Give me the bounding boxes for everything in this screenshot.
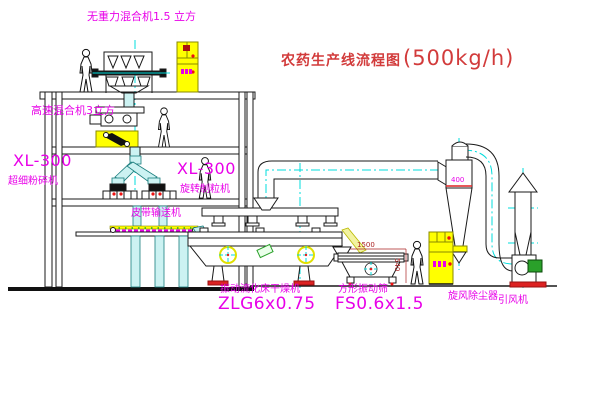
vibration-motor <box>219 246 237 264</box>
dim-sieve-height: 540 <box>393 258 400 271</box>
vibration-motor <box>297 246 315 264</box>
label-sieve-model: FS0.6x1.5 <box>335 296 424 313</box>
gravity-mixer <box>88 52 170 109</box>
worker-figure-level2 <box>158 108 169 147</box>
worker-figure-roof <box>80 49 92 92</box>
label-belt-conveyor: 皮带输送机 <box>131 209 181 219</box>
label-mill-model: XL-300 <box>13 153 72 169</box>
y-chute <box>112 156 160 184</box>
granulator-left <box>103 184 137 199</box>
label-granulator-model: XL-300 <box>177 161 236 177</box>
dryer-feet <box>208 266 314 285</box>
label-fan-name: 引风机 <box>498 296 528 306</box>
dryer-dampers <box>212 216 337 226</box>
title-capacity: (500kg/h) <box>403 46 514 70</box>
down-pipe <box>466 144 513 271</box>
dim-cyclone-diameter: 400 <box>451 177 464 184</box>
dim-sieve-length: 1500 <box>357 242 375 249</box>
induced-draft-fan <box>510 255 546 287</box>
label-high-speed-mixer: 高速混合机3立方 <box>31 105 115 116</box>
title-text: 农药生产线流程图 <box>281 50 401 70</box>
control-cabinet-right <box>429 232 453 284</box>
exhaust-duct <box>254 161 438 210</box>
worker-figure-ground <box>411 241 423 284</box>
granulator-right <box>142 184 176 199</box>
label-mill-name: 超细粉碎机 <box>8 177 58 187</box>
diagram-title: 农药生产线流程图 (500kg/h) <box>281 46 514 70</box>
label-gravity-mixer: 无重力混合机1.5 立方 <box>87 11 196 22</box>
process-flow-diagram: 农药生产线流程图 (500kg/h) 无重力混合机1.5 立方 高速混合机3立方… <box>0 0 600 403</box>
label-granulator-name: 旋转制粒机 <box>180 185 230 195</box>
control-cabinet-top <box>177 42 198 92</box>
label-cyclone-name: 旋风除尘器 <box>448 292 498 302</box>
label-dryer-model: ZLG6x0.75 <box>218 296 316 313</box>
fluid-bed-dryer <box>188 208 366 285</box>
